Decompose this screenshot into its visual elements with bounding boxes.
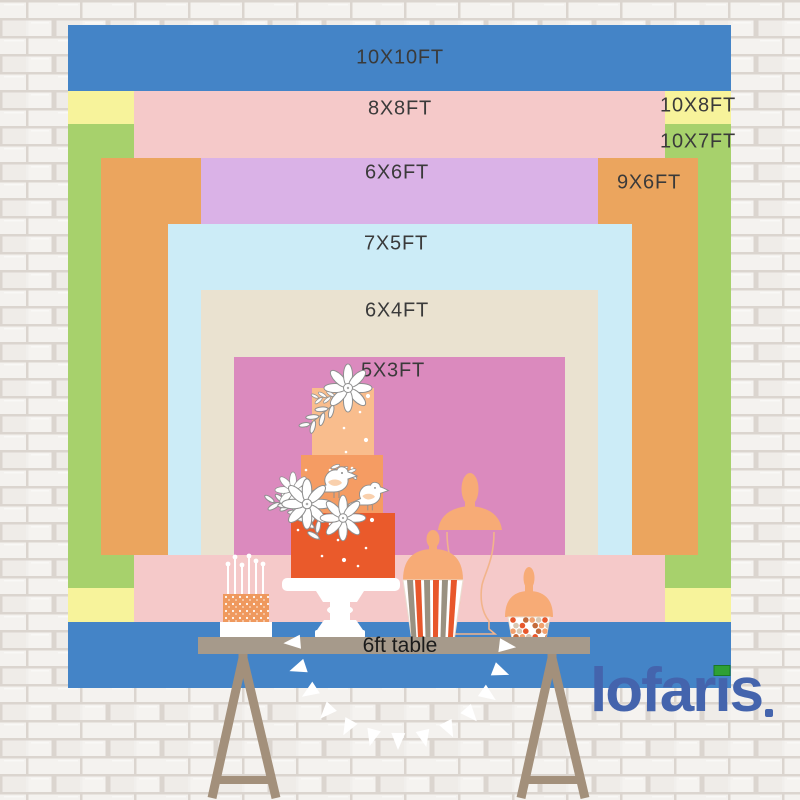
logo-letter-i: ı [714,660,729,722]
cake-stand [282,578,400,638]
logo-dot-icon [765,709,773,717]
candle-cake [220,554,272,638]
table-label: 6ft table [363,634,438,657]
trestle-legs-right [521,650,585,798]
logo-text-pre: lofar [590,656,714,725]
table-top: 6ft table [198,634,590,657]
logo-i-mark-icon [713,665,730,676]
striped-candy-cup [403,530,463,641]
candy-jar [505,567,553,642]
trestle-legs-left [212,650,276,798]
lofaris-logo: lofarıs [590,660,762,736]
logo-text-post: s [730,656,762,725]
